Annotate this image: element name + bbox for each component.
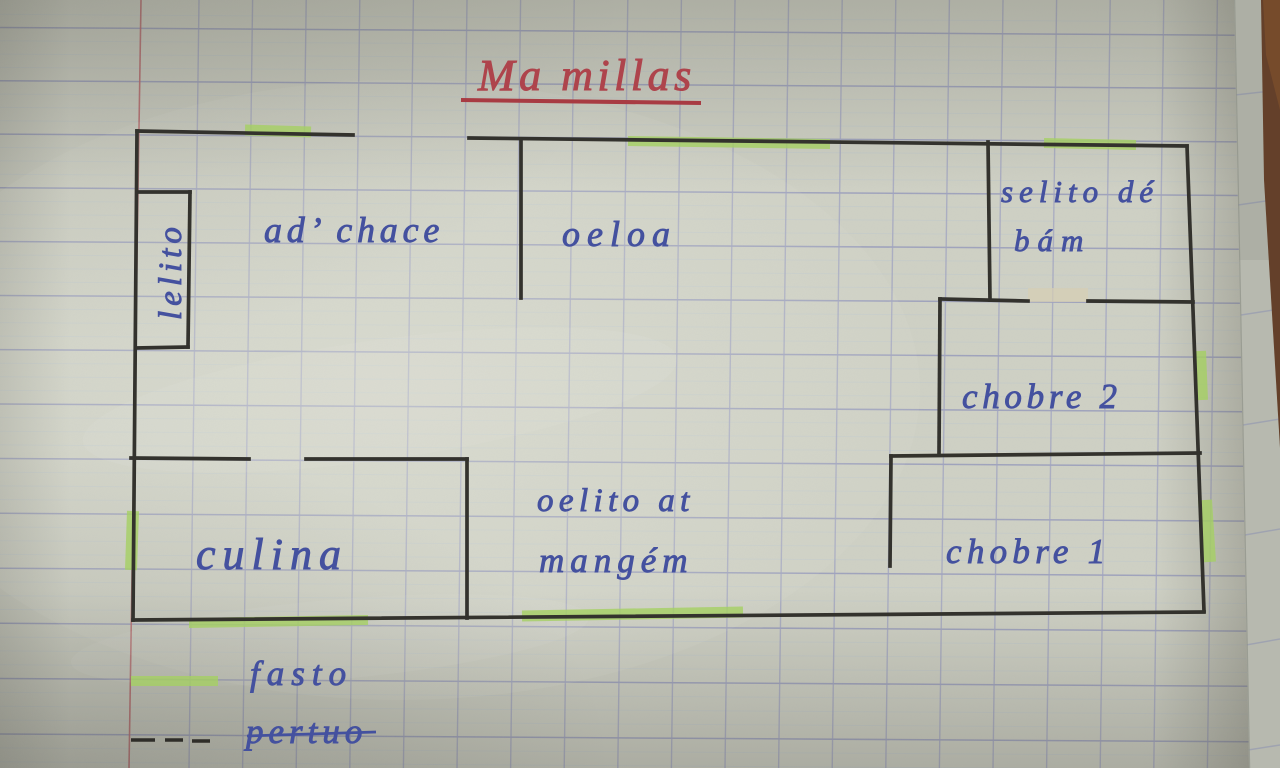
svg-text:ad’ chace: ad’ chace: [264, 210, 444, 250]
svg-text:culina: culina: [196, 530, 348, 579]
svg-text:selito dé: selito dé: [1001, 174, 1159, 209]
svg-text:bám: bám: [1014, 223, 1091, 258]
svg-text:oelito at: oelito at: [537, 483, 695, 519]
svg-text:fasto: fasto: [250, 654, 353, 693]
svg-text:Ma millas: Ma millas: [477, 51, 696, 100]
svg-text:chobre 2: chobre 2: [962, 377, 1122, 416]
svg-text:chobre 1: chobre 1: [946, 532, 1111, 571]
svg-text:oeloa: oeloa: [562, 214, 677, 254]
svg-text:mangém: mangém: [539, 541, 694, 580]
svg-text:lelito: lelito: [153, 222, 189, 320]
